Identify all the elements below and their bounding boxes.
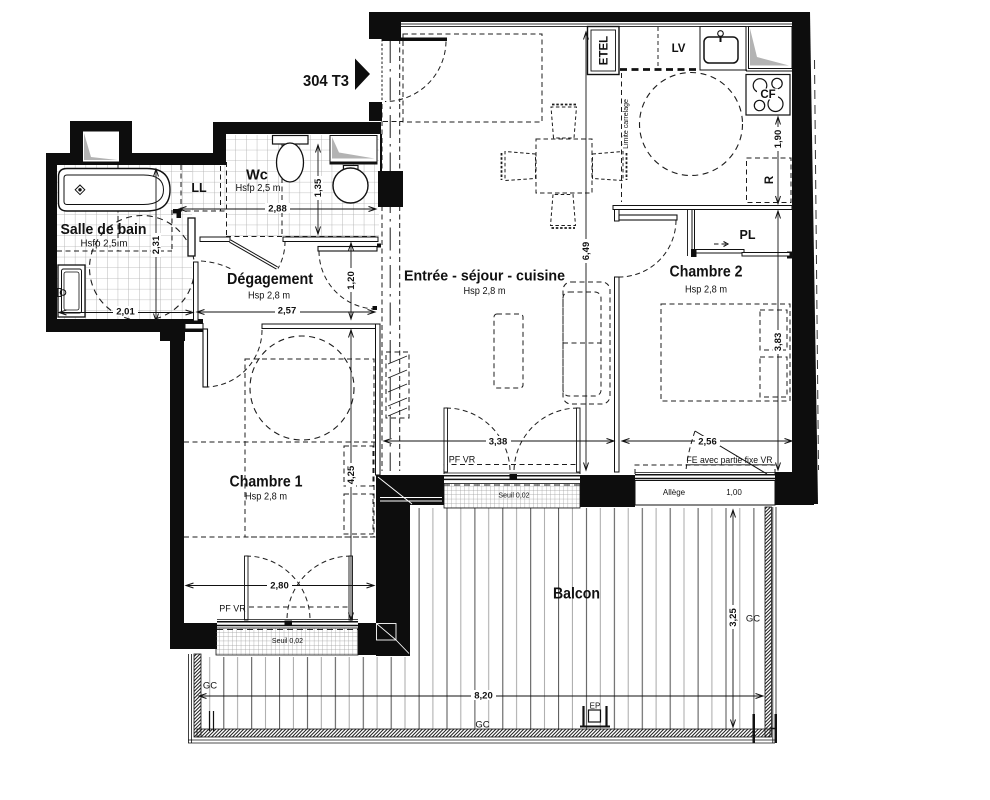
svg-text:Chambre 2: Chambre 2 bbox=[670, 264, 743, 281]
svg-text:3,38: 3,38 bbox=[489, 437, 508, 448]
svg-text:Balcon: Balcon bbox=[553, 585, 600, 602]
svg-text:CF: CF bbox=[760, 89, 775, 101]
svg-text:PF VR: PF VR bbox=[449, 455, 476, 465]
svg-text:GC: GC bbox=[746, 614, 760, 625]
svg-text:1,90: 1,90 bbox=[773, 130, 784, 149]
svg-text:Entrée - séjour - cuisine: Entrée - séjour - cuisine bbox=[404, 268, 565, 284]
svg-text:4,25: 4,25 bbox=[346, 465, 357, 484]
svg-text:8,20: 8,20 bbox=[474, 691, 493, 702]
svg-text:FE avec partie fixe VR: FE avec partie fixe VR bbox=[687, 455, 773, 465]
svg-text:Dégagement: Dégagement bbox=[227, 271, 313, 288]
svg-text:Hsp 2,8 m: Hsp 2,8 m bbox=[248, 290, 290, 302]
svg-text:LL: LL bbox=[191, 181, 207, 195]
svg-text:Seuil 0,02: Seuil 0,02 bbox=[272, 638, 303, 645]
svg-text:Seuil 0,02: Seuil 0,02 bbox=[498, 492, 529, 499]
svg-text:1,00: 1,00 bbox=[726, 488, 742, 497]
svg-text:2,01: 2,01 bbox=[116, 307, 135, 318]
svg-text:Limite carrelage: Limite carrelage bbox=[623, 99, 630, 149]
svg-text:R: R bbox=[764, 175, 776, 184]
svg-text:2,88: 2,88 bbox=[268, 204, 287, 215]
svg-text:Hsfp 2,5 m: Hsfp 2,5 m bbox=[81, 239, 128, 250]
svg-text:2,31: 2,31 bbox=[151, 235, 162, 254]
svg-text:EP: EP bbox=[590, 701, 601, 710]
svg-text:2,57: 2,57 bbox=[278, 306, 297, 317]
svg-text:Hsfp 2,5 m: Hsfp 2,5 m bbox=[236, 183, 281, 194]
svg-text:ETEL: ETEL bbox=[599, 36, 611, 65]
svg-text:Chambre 1: Chambre 1 bbox=[230, 474, 303, 491]
svg-text:LV: LV bbox=[672, 43, 686, 55]
svg-text:3,83: 3,83 bbox=[773, 333, 784, 352]
svg-text:Hsp 2,8 m: Hsp 2,8 m bbox=[685, 284, 727, 296]
svg-text:2,80: 2,80 bbox=[270, 581, 289, 592]
svg-text:1,20: 1,20 bbox=[346, 271, 357, 290]
svg-text:Allège: Allège bbox=[663, 488, 686, 497]
svg-text:PF VR: PF VR bbox=[219, 604, 246, 614]
svg-text:Salle de bain: Salle de bain bbox=[61, 221, 147, 238]
svg-text:3,25: 3,25 bbox=[728, 608, 739, 627]
svg-text:Hsp 2,8 m: Hsp 2,8 m bbox=[245, 491, 287, 503]
svg-text:Hsp 2,8 m: Hsp 2,8 m bbox=[464, 285, 506, 297]
svg-text:PL: PL bbox=[740, 228, 756, 242]
svg-text:GC: GC bbox=[475, 720, 489, 731]
svg-text:Wc: Wc bbox=[246, 168, 268, 184]
svg-text:1,35: 1,35 bbox=[313, 178, 324, 197]
svg-text:304 T3: 304 T3 bbox=[303, 73, 349, 90]
svg-text:6,49: 6,49 bbox=[581, 242, 592, 261]
svg-text:GC: GC bbox=[203, 681, 217, 692]
svg-text:2,56: 2,56 bbox=[698, 437, 717, 448]
